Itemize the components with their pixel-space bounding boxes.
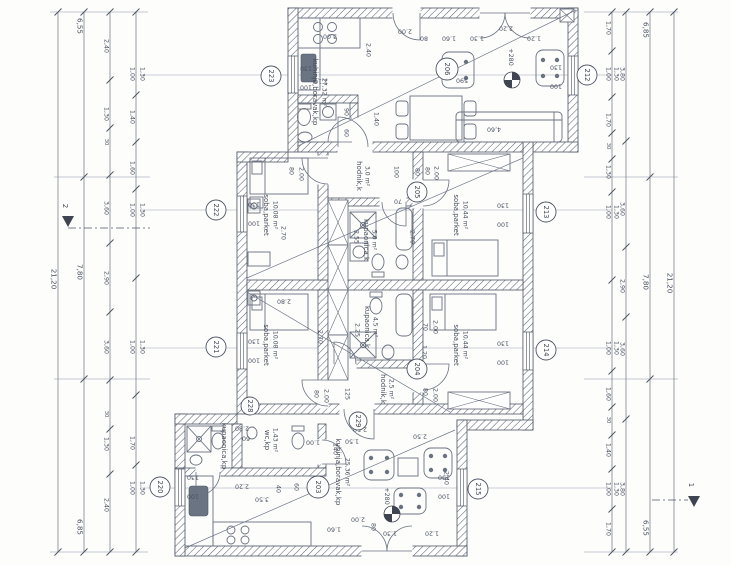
interior-dim-label: 2.70: [280, 226, 287, 240]
chain-dim-label: 30: [103, 139, 109, 146]
section-number: 2: [61, 204, 69, 208]
floor-plan-canvas: 21,206,557,806,852,401,30303,602,903,603…: [0, 0, 731, 565]
window-size-label: 100: [187, 493, 199, 500]
door-opening: [318, 156, 329, 185]
window-symbol: [523, 332, 533, 370]
interior-dim-label: 80: [370, 523, 377, 531]
chain-dim-label: 1,00: [129, 203, 136, 217]
interior-dim-label: 3.50: [255, 496, 269, 503]
level-value-label: +280: [383, 487, 391, 505]
chain-dim-label: 1,70: [605, 21, 612, 35]
interior-dim-label: 590: [456, 77, 468, 84]
interior-dim-label: 2.70: [409, 230, 416, 244]
room-name-label: soba,parket: [452, 194, 460, 236]
chain-dim-label: 21,20: [50, 269, 59, 290]
window-size-label: 130: [438, 474, 450, 481]
window-size-label: 130: [248, 338, 260, 345]
marker-number: 215: [474, 483, 482, 496]
chain-dim-label: 1,70: [605, 522, 612, 536]
window-symbol: [237, 333, 247, 369]
interior-dim-label: 80: [422, 388, 429, 396]
chain-dim-label: 1,70: [129, 436, 136, 450]
chain-dim-label: 1,40: [605, 443, 612, 457]
chain-dim-label: 1,30: [613, 205, 620, 219]
marker-number: 204: [413, 363, 421, 376]
window-size-label: 130: [248, 201, 260, 208]
chain-dim-label: 6,55: [642, 520, 651, 536]
chain-dim-label: 1,30: [103, 107, 110, 121]
window-symbol: [175, 469, 185, 506]
interior-dim-label: 80: [424, 167, 431, 175]
chain-dim-label: 1,30: [139, 340, 146, 354]
room-area-label: 5,0 m²: [371, 230, 378, 251]
kitchen-sink-icon: [189, 486, 208, 516]
room-name-label: kuhinja,boravak,kp: [311, 59, 319, 126]
interior-dim-label: 2.50: [413, 433, 427, 440]
interior-dim-label: 2.55: [353, 230, 360, 244]
chain-dim-label: 3,60: [103, 201, 110, 215]
chain-dim-label: 1,00: [129, 340, 136, 354]
marker-number: 229: [354, 415, 362, 428]
interior-dim-label: 1.20: [421, 345, 428, 359]
chain-dim-label: 2,40: [103, 39, 110, 53]
chain-dim-label: 30: [605, 417, 611, 424]
interior-dim-label: 80: [414, 168, 421, 176]
interior-dim-label: 2.00: [432, 320, 439, 334]
wall-segment: [288, 8, 578, 18]
wall-segment: [533, 142, 578, 152]
interior-dim-label: 70: [422, 323, 429, 331]
chain-dim-label: 7,80: [642, 274, 651, 290]
interior-dim-label: 125: [344, 388, 351, 400]
marker-number: 206: [443, 63, 451, 76]
interior-dim-label: 80: [313, 390, 320, 398]
interior-dim-label: 2.00: [298, 167, 305, 181]
chain-dim-label: 1,40: [129, 110, 136, 124]
interior-dim-label: 2.80: [235, 425, 249, 432]
chain-dim-label: 1,30: [139, 481, 146, 495]
interior-dim-label: 2.80: [277, 298, 291, 305]
chain-dim-label: 1,30: [605, 165, 612, 179]
window-size-label: 100: [248, 220, 260, 227]
door-opening: [338, 142, 373, 153]
interior-dim-label: 2.70: [317, 330, 324, 344]
window-symbol: [523, 194, 533, 233]
floor-plan-document: 21,206,557,806,852,401,30303,602,903,603…: [0, 0, 731, 565]
room-name-label: kuhinja,boravak,kp: [334, 439, 342, 506]
chain-dim-label: 30: [103, 411, 109, 418]
marker-number: 205: [413, 186, 421, 199]
chain-dim-label: 7,80: [76, 264, 85, 280]
interior-dim-label: 2.00: [432, 388, 439, 402]
chain-dim-label: 1,60: [129, 161, 136, 175]
chain-dim-label: 1,00: [605, 482, 612, 496]
interior-dim-label: 1,40: [373, 112, 380, 126]
chain-dim-label: 6,85: [642, 22, 651, 38]
interior-dim-label: 1.20: [425, 530, 439, 537]
marker-number: 222: [212, 204, 220, 217]
wall-segment: [175, 546, 467, 556]
interior-dim-label: 1.50: [345, 438, 359, 445]
room-area-label: 4,5 m²: [372, 317, 379, 338]
chain-dim-label: 2,90: [619, 279, 626, 293]
wall-segment: [457, 420, 533, 430]
wall-segment: [523, 142, 533, 430]
marker-number: 221: [212, 341, 220, 354]
interior-dim-label: 2.00: [323, 389, 330, 403]
room-area-label: 10,44 m²: [462, 331, 469, 360]
wall-segment: [247, 280, 523, 290]
window-symbol: [568, 56, 578, 95]
window-size-label: 130: [187, 474, 199, 481]
window-size-label: 100: [497, 221, 509, 228]
room-area-label: 10,44 m²: [462, 201, 469, 230]
marker-number: 214: [542, 344, 550, 357]
chain-dim-label: 1,70: [605, 113, 612, 127]
interior-dim-label: 3.00: [323, 33, 337, 40]
room-area-label: 10,08 m²: [272, 201, 279, 230]
level-value-label: +280: [507, 48, 515, 66]
window-size-label: 100: [438, 493, 450, 500]
window-size-label: 100: [248, 357, 260, 364]
room-name-label: soba,parket: [452, 324, 460, 366]
wall-segment: [298, 142, 523, 152]
chain-dim-label: 2,90: [103, 271, 110, 285]
room-area-label: 2,5 m²: [388, 379, 395, 400]
chain-dim-label: 1,30: [103, 437, 110, 451]
chain-dim-label: 1,30: [613, 341, 620, 355]
room-name-label: hodnik,k: [379, 374, 387, 405]
chain-dim-label: 1,30: [139, 203, 146, 217]
room-area-label: 10,08 m²: [272, 331, 279, 360]
interior-dim-label: 1.30: [383, 530, 397, 537]
room-name-label: kupaonica,k: [363, 306, 371, 349]
room-name-label: kupaonica,kp: [220, 423, 228, 470]
window-size-label: 130: [497, 340, 509, 347]
marker-number: 203: [314, 481, 322, 494]
chain-dim-label: 1,30: [613, 482, 620, 496]
interior-dim-label: 2.25: [354, 323, 361, 337]
marker-number: 212: [583, 69, 591, 82]
interior-dim-label: 90: [343, 108, 350, 116]
chain-dim-label: 1,00: [605, 341, 612, 355]
room-name-label: kupaonica,k: [362, 219, 370, 262]
room-area-label: 3,0 m²: [364, 166, 371, 187]
chain-dim-label: 1,30: [139, 67, 146, 81]
marker-number: 213: [542, 206, 550, 219]
interior-dim-label: 2.20: [499, 25, 513, 32]
interior-dim-label: 1.30: [470, 35, 484, 42]
window-size-label: 130: [300, 65, 312, 72]
section-number: 1: [687, 483, 695, 487]
interior-dim-label: 2.00: [351, 516, 365, 523]
marker-number: 223: [267, 70, 275, 83]
interior-dim-label: 4,60: [487, 126, 501, 133]
interior-dim-label: 80: [288, 167, 295, 175]
chain-dim-label: 6,55: [76, 18, 85, 34]
window-size-label: 100: [550, 83, 562, 90]
room-name-label: soba,parket: [262, 194, 270, 236]
window-size-label: 130: [497, 202, 509, 209]
chain-dim-label: 1,30: [613, 67, 620, 81]
window-symbol: [237, 196, 247, 232]
interior-dim-label: 1.00: [306, 439, 320, 446]
room-area-label: 1,43 m²: [272, 428, 279, 453]
chain-dim-label: 1,00: [129, 481, 136, 495]
interior-dim-label: 2.00: [398, 28, 412, 35]
chain-dim-label: 21,20: [666, 273, 675, 294]
interior-dim-label: 60: [343, 129, 350, 137]
interior-dim-label: 80: [420, 35, 428, 42]
room-area-label: 25,36 m²: [344, 458, 351, 487]
interior-dim-label: 1.20: [527, 35, 541, 42]
room-name-label: soba,parket: [262, 324, 270, 366]
chain-dim-label: 1,00: [129, 67, 136, 81]
wall-segment: [237, 152, 288, 162]
interior-dim-label: 2.00: [433, 166, 440, 180]
room-area-label: 27,32 m²: [321, 78, 328, 107]
marker-number: 220: [156, 481, 164, 494]
window-size-label: 100: [497, 359, 509, 366]
chain-dim-label: 30: [605, 143, 611, 150]
room-name-label: wc,kp: [263, 430, 271, 451]
window-size-label: 100: [300, 84, 312, 91]
interior-dim-label: 2.40: [365, 43, 372, 57]
interior-dim-label: 60: [293, 483, 300, 491]
interior-dim-label: 60: [242, 435, 250, 442]
door-opening: [393, 8, 421, 19]
interior-dim-label: 40: [275, 485, 282, 493]
chain-dim-label: 1,60: [605, 387, 612, 401]
chain-dim-label: 6,85: [76, 519, 85, 535]
room-name-label: hodnik,k: [355, 161, 363, 192]
marker-number: 228: [246, 400, 254, 413]
chain-dim-label: 1,00: [605, 205, 612, 219]
interior-dim-label: 1.60: [327, 526, 341, 533]
window-symbol: [457, 469, 467, 506]
chain-dim-label: 1,00: [605, 67, 612, 81]
window-size-label: 130: [550, 64, 562, 71]
wall-segment: [237, 152, 247, 414]
interior-dim-label: 1.60: [442, 35, 456, 42]
chain-dim-label: 3,60: [103, 340, 110, 354]
window-symbol: [288, 56, 298, 93]
interior-dim-label: 100: [393, 166, 400, 178]
interior-dim-label: 70: [394, 198, 402, 205]
chain-dim-label: 2,40: [103, 498, 110, 512]
interior-dim-label: 2.20: [235, 483, 249, 490]
